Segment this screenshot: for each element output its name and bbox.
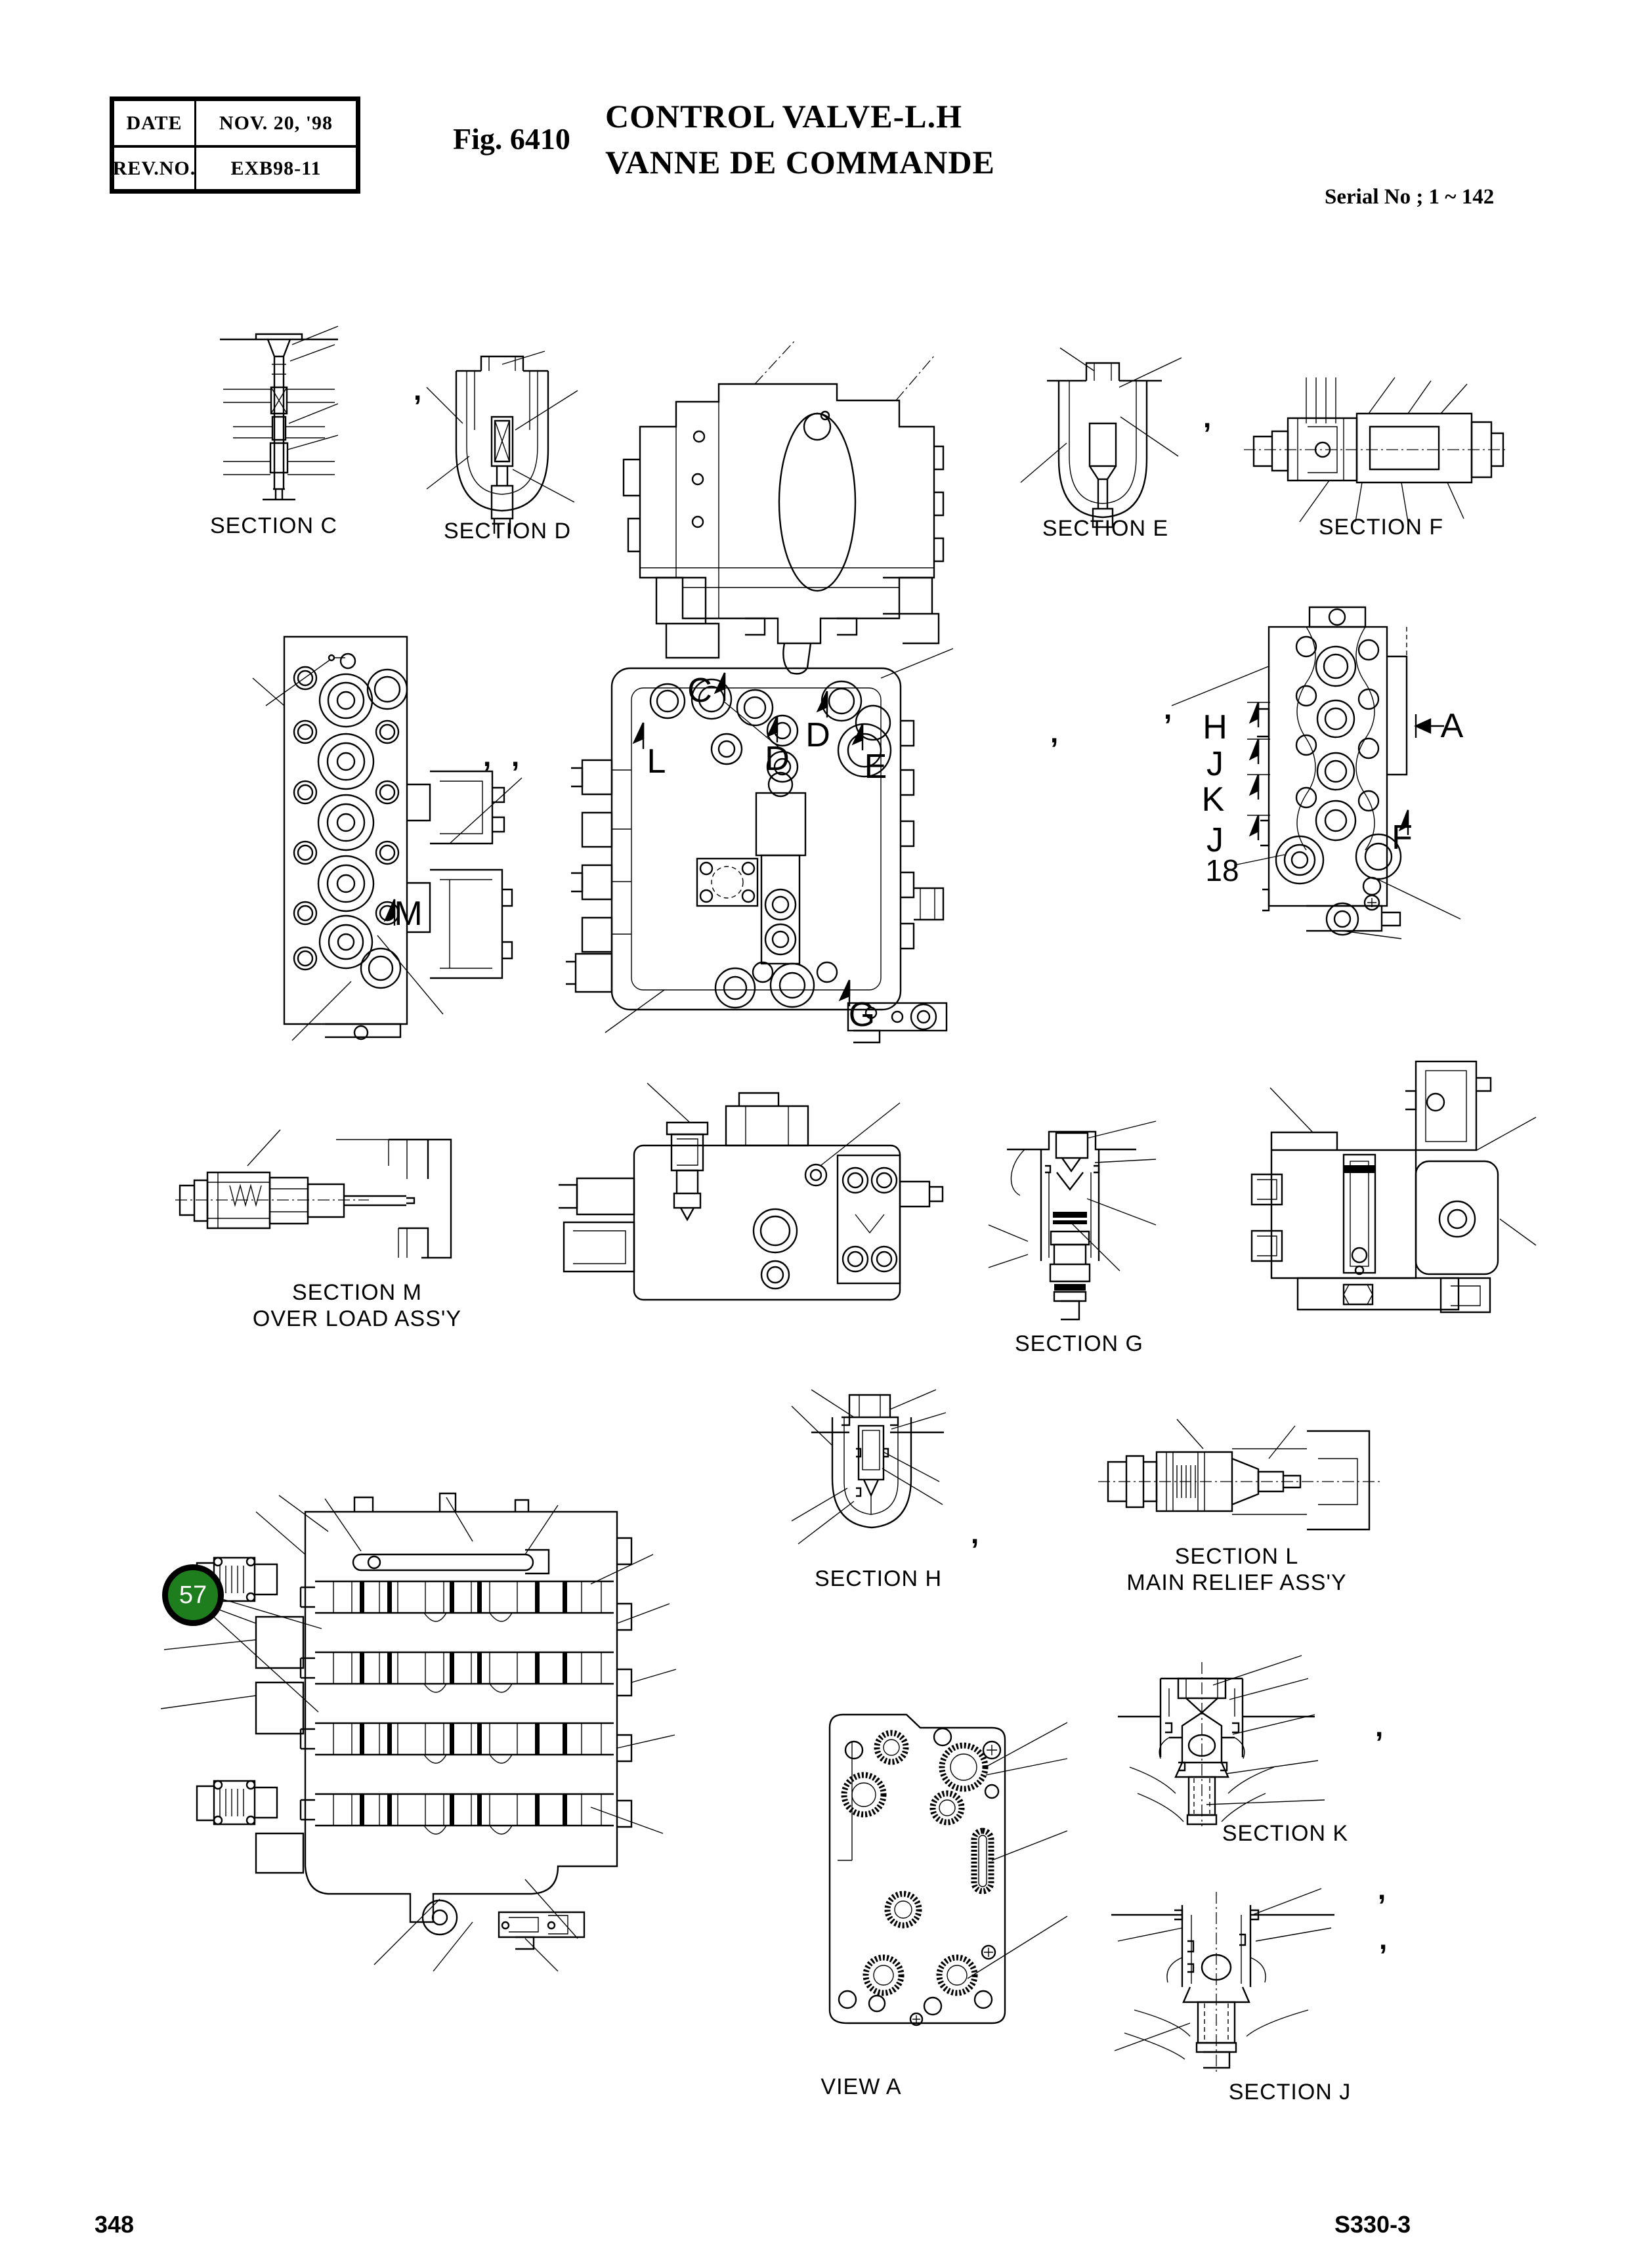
section-k-label: SECTION K — [1222, 1821, 1348, 1847]
main-valve-section-drawing — [158, 1492, 676, 1971]
stray-comma: , — [483, 740, 491, 773]
page-number: 348 — [95, 2211, 134, 2238]
stray-comma: , — [414, 374, 421, 407]
section-f-drawing — [1244, 377, 1506, 522]
table-row: DATE NOV. 20, '98 — [114, 101, 356, 145]
stray-comma: , — [1164, 693, 1172, 726]
serial-range: Serial No ; 1 ~ 142 — [1325, 185, 1494, 209]
manual-page: DATE NOV. 20, '98 REV.NO. EXB98-11 Fig. … — [0, 0, 1641, 2268]
valve-body-side-drawing — [559, 1083, 946, 1326]
section-j-label: SECTION J — [1229, 2080, 1352, 2105]
stray-comma: , — [1203, 402, 1211, 435]
section-e-drawing — [1021, 358, 1185, 542]
section-e-label: SECTION E — [1042, 516, 1168, 542]
revno-value: EXB98-11 — [196, 148, 356, 189]
stray-comma: , — [511, 740, 519, 773]
callout-l: L — [647, 742, 666, 781]
callout-m: M — [394, 894, 422, 933]
section-l-sublabel: MAIN RELIEF ASS'Y — [1126, 1570, 1346, 1596]
doc-number: S330-3 — [1334, 2211, 1411, 2238]
section-c-drawing — [217, 325, 341, 509]
page-title-fr: VANNE DE COMMANDE — [605, 143, 995, 181]
callout-f: F — [1392, 818, 1413, 857]
stray-comma: , — [1378, 1873, 1386, 1906]
callout-a: A — [1441, 706, 1464, 746]
valve-front-view-drawing — [253, 627, 522, 1040]
callout-part-18: 18 — [1205, 853, 1239, 888]
callout-g: G — [849, 995, 875, 1035]
valve-side-view-drawing — [1244, 604, 1480, 939]
part-balloon-number: 57 — [179, 1581, 207, 1610]
figure-number: Fig. 6410 — [453, 121, 570, 156]
valve-plan-view-drawing — [566, 639, 953, 1033]
section-l-drawing — [1098, 1419, 1380, 1544]
section-m-drawing — [172, 1120, 487, 1281]
part-balloon: 57 — [162, 1564, 224, 1626]
section-m-label: SECTION M — [292, 1280, 422, 1306]
section-c-label: SECTION C — [210, 513, 337, 539]
date-label: DATE — [114, 101, 196, 145]
section-g-label: SECTION G — [1015, 1331, 1143, 1357]
page-title: CONTROL VALVE-L.H — [605, 97, 962, 135]
table-row: REV.NO. EXB98-11 — [114, 145, 356, 189]
view-a-drawing — [792, 1696, 1067, 2054]
callout-k: K — [1202, 780, 1225, 819]
section-d-drawing — [423, 351, 581, 535]
valve-top-view-drawing — [620, 361, 962, 676]
revision-table: DATE NOV. 20, '98 REV.NO. EXB98-11 — [110, 96, 360, 194]
stray-comma: , — [971, 1518, 979, 1551]
section-k-drawing — [1098, 1652, 1374, 1829]
section-l-label: SECTION L — [1175, 1544, 1298, 1570]
section-h-label: SECTION H — [815, 1566, 942, 1592]
callout-h: H — [1203, 708, 1227, 747]
date-value: NOV. 20, '98 — [196, 101, 356, 145]
revno-label: REV.NO. — [114, 148, 196, 189]
callout-d2: D — [805, 716, 830, 755]
section-g-drawing — [989, 1120, 1156, 1323]
section-f-label: SECTION F — [1319, 515, 1443, 540]
view-a-label: VIEW A — [820, 2074, 901, 2100]
section-m-sublabel: OVER LOAD ASS'Y — [253, 1306, 461, 1332]
stray-comma: , — [1379, 1923, 1387, 1956]
callout-d1: D — [765, 739, 790, 779]
section-h-drawing — [792, 1390, 966, 1551]
callout-j1: J — [1206, 744, 1224, 784]
stray-comma: , — [1375, 1711, 1383, 1744]
callout-e: E — [864, 747, 887, 786]
pilot-assembly-drawing — [1244, 1061, 1536, 1331]
section-j-drawing — [1098, 1879, 1374, 2076]
callout-c: C — [687, 671, 712, 710]
section-d-label: SECTION D — [444, 519, 571, 544]
stray-comma: , — [1050, 717, 1058, 750]
